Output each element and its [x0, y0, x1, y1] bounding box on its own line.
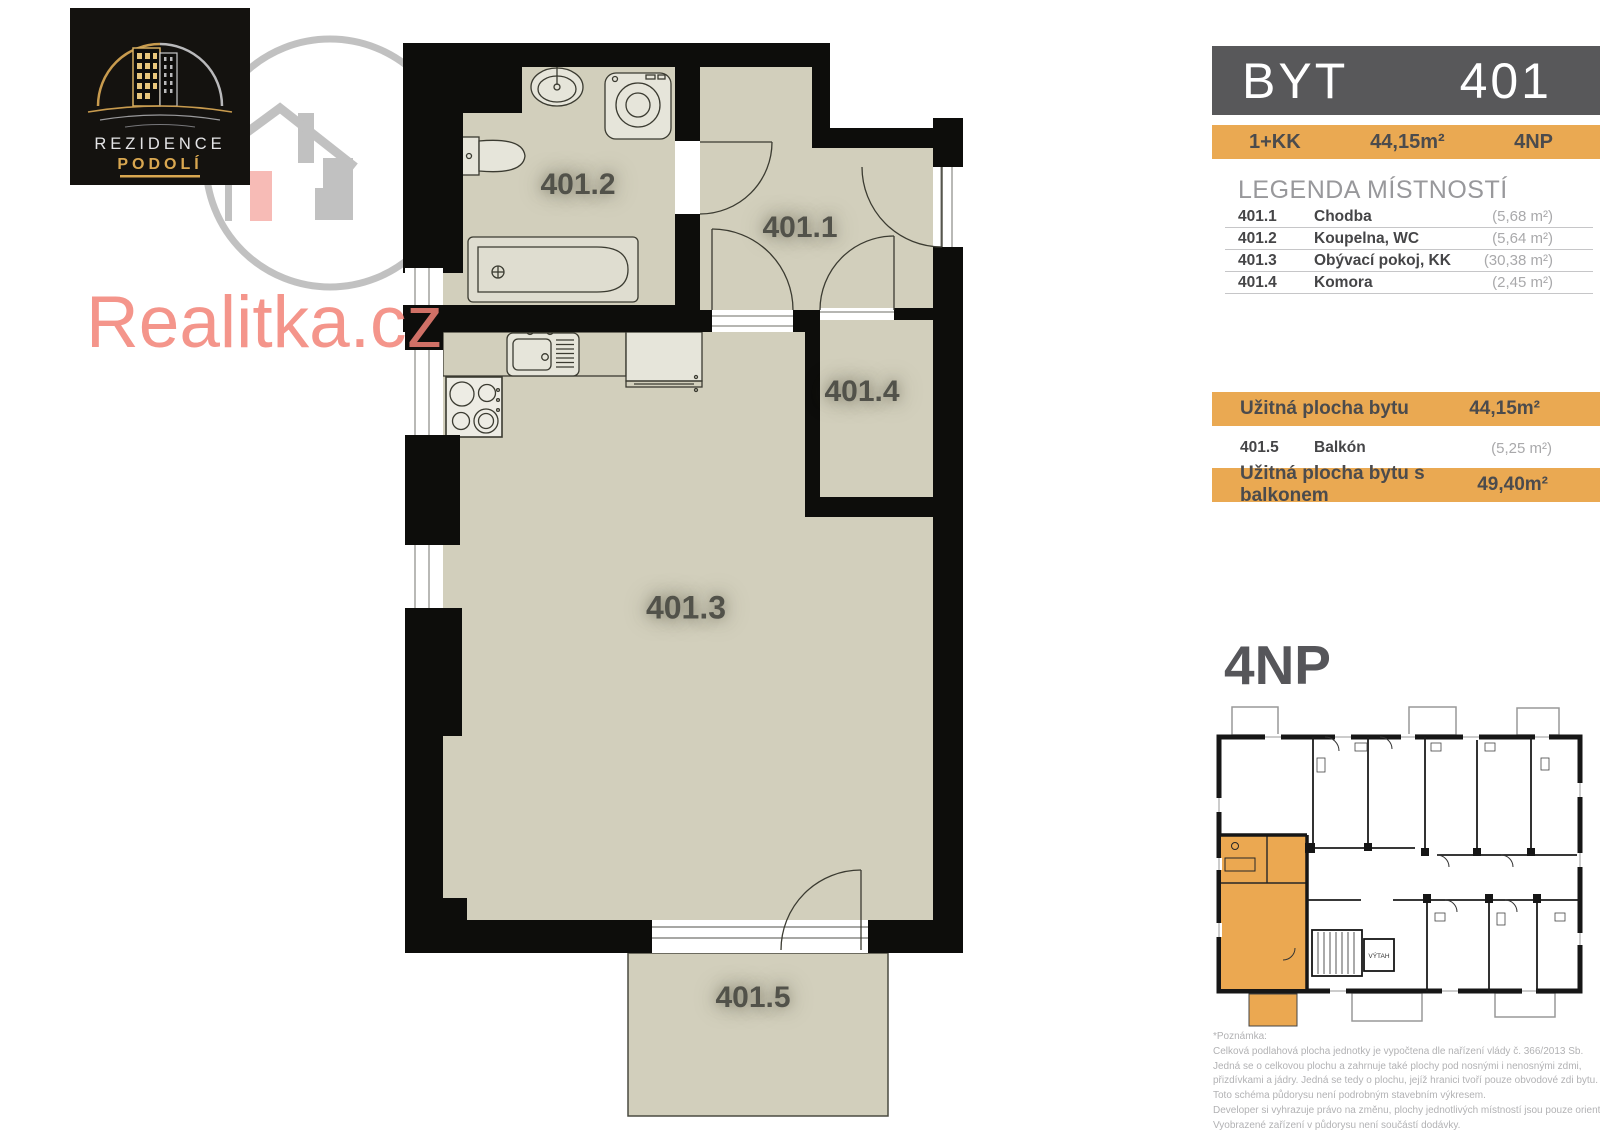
room-area: (5,68 m²) [1492, 208, 1593, 225]
legend-row: 401.2 Koupelna, WC (5,64 m²) [1225, 228, 1593, 250]
logo-line1: REZIDENCE [94, 135, 225, 153]
footnote-line: Celková podlahová plocha jednotky je vyp… [1213, 1045, 1599, 1060]
legend-row: 401.4 Komora (2,45 m²) [1225, 272, 1593, 294]
logo-line2: PODOLÍ [117, 154, 202, 173]
page: 401.1 401.2 401.3 401.4 401.5 [0, 0, 1600, 1131]
footnote-line: Developer si vyhrazuje právo na změnu, p… [1213, 1104, 1599, 1119]
mini-highlighted-unit [1219, 835, 1307, 1026]
logo: REZIDENCE PODOLÍ [70, 8, 250, 185]
room-label-hall: 401.1 [762, 211, 837, 245]
room-id: 401.3 [1225, 252, 1314, 270]
room-name: Obývací pokoj, KK [1314, 252, 1484, 270]
usable-area-label: Užitná plocha bytu [1240, 398, 1409, 420]
room-name: Balkón [1314, 439, 1491, 457]
footnote: *Poznámka: Celková podlahová plocha jedn… [1213, 1030, 1599, 1131]
elevator-label: VÝTAH [1368, 951, 1389, 960]
logo-graphic: REZIDENCE PODOLÍ [70, 8, 250, 185]
balcony-row: 401.5 Balkón (5,25 m²) [1212, 436, 1593, 460]
balcony-door-opening [652, 920, 868, 953]
room-area: (5,64 m²) [1492, 230, 1593, 247]
legend-row: 401.3 Obývací pokoj, KK (30,38 m²) [1225, 250, 1593, 272]
storage-door-opening [820, 308, 894, 320]
footnote-line: přizdívkami a jádry. Jedná se tedy o plo… [1213, 1074, 1599, 1089]
legend-table: 401.1 Chodba (5,68 m²) 401.2 Koupelna, W… [1225, 206, 1593, 294]
footnote-line: Vyobrazené zařízení v půdorysu není souč… [1213, 1119, 1599, 1131]
room-area: (30,38 m²) [1484, 252, 1593, 269]
washing-machine-icon [605, 73, 671, 139]
stove-icon [446, 377, 502, 437]
room-id: 401.2 [1225, 230, 1314, 248]
room-id: 401.5 [1212, 439, 1314, 457]
mini-elevator: VÝTAH [1364, 939, 1394, 971]
area-value: 44,15m² [1370, 131, 1445, 154]
kitchen-sink-icon [507, 328, 579, 377]
bathtub-icon [468, 237, 638, 302]
usable-balcony-label: Užitná plocha bytu s balkonem [1240, 463, 1477, 507]
balcony [628, 953, 888, 1116]
room-label-bath: 401.2 [540, 168, 615, 202]
usable-area-with-balcony-bar: Užitná plocha bytu s balkonem 49,40m² [1212, 468, 1600, 502]
footnote-line: Toto schéma půdorysu není podrobným stav… [1213, 1089, 1599, 1104]
room-area: (2,45 m²) [1492, 274, 1593, 291]
floor-value: 4NP [1514, 131, 1553, 154]
usable-balcony-value: 49,40m² [1477, 474, 1548, 496]
building-icon [133, 48, 177, 106]
room-name: Chodba [1314, 208, 1492, 226]
legend-title: LEGENDA MÍSTNOSTÍ [1238, 176, 1508, 205]
floor-plan [400, 30, 975, 1130]
room-name: Komora [1314, 274, 1492, 292]
room-id: 401.4 [1225, 274, 1314, 292]
room-label-living: 401.3 [646, 590, 726, 627]
window-3 [405, 545, 443, 608]
unit-header-bar: BYT 401 [1212, 46, 1600, 115]
mini-stairs-icon [1312, 930, 1362, 976]
layout-value: 1+KK [1249, 131, 1301, 154]
legend-row: 401.1 Chodba (5,68 m²) [1225, 206, 1593, 228]
room-label-balcony: 401.5 [715, 981, 790, 1015]
hall-living-opening [712, 310, 793, 332]
room-name: Koupelna, WC [1314, 230, 1492, 248]
unit-title: BYT [1242, 52, 1348, 110]
footnote-line: Jedná se o celkovou plochu a zahrnuje ta… [1213, 1060, 1599, 1075]
logo-swoosh [88, 106, 232, 127]
room-id: 401.1 [1225, 208, 1314, 226]
bath-door-opening [675, 141, 700, 214]
usable-area-value: 44,15m² [1469, 398, 1540, 420]
watermark-text: Realitka.cz [86, 281, 443, 364]
unit-number: 401 [1460, 52, 1552, 110]
room-area: (5,25 m²) [1491, 440, 1593, 457]
summary-bar: 1+KK 44,15m² 4NP [1212, 125, 1600, 159]
mini-floor-plan: VÝTAH [1205, 698, 1595, 1033]
usable-area-bar: Užitná plocha bytu 44,15m² [1212, 392, 1600, 426]
room-label-storage: 401.4 [824, 375, 899, 409]
entry-door-opening [933, 167, 963, 247]
floor-title: 4NP [1224, 633, 1331, 697]
